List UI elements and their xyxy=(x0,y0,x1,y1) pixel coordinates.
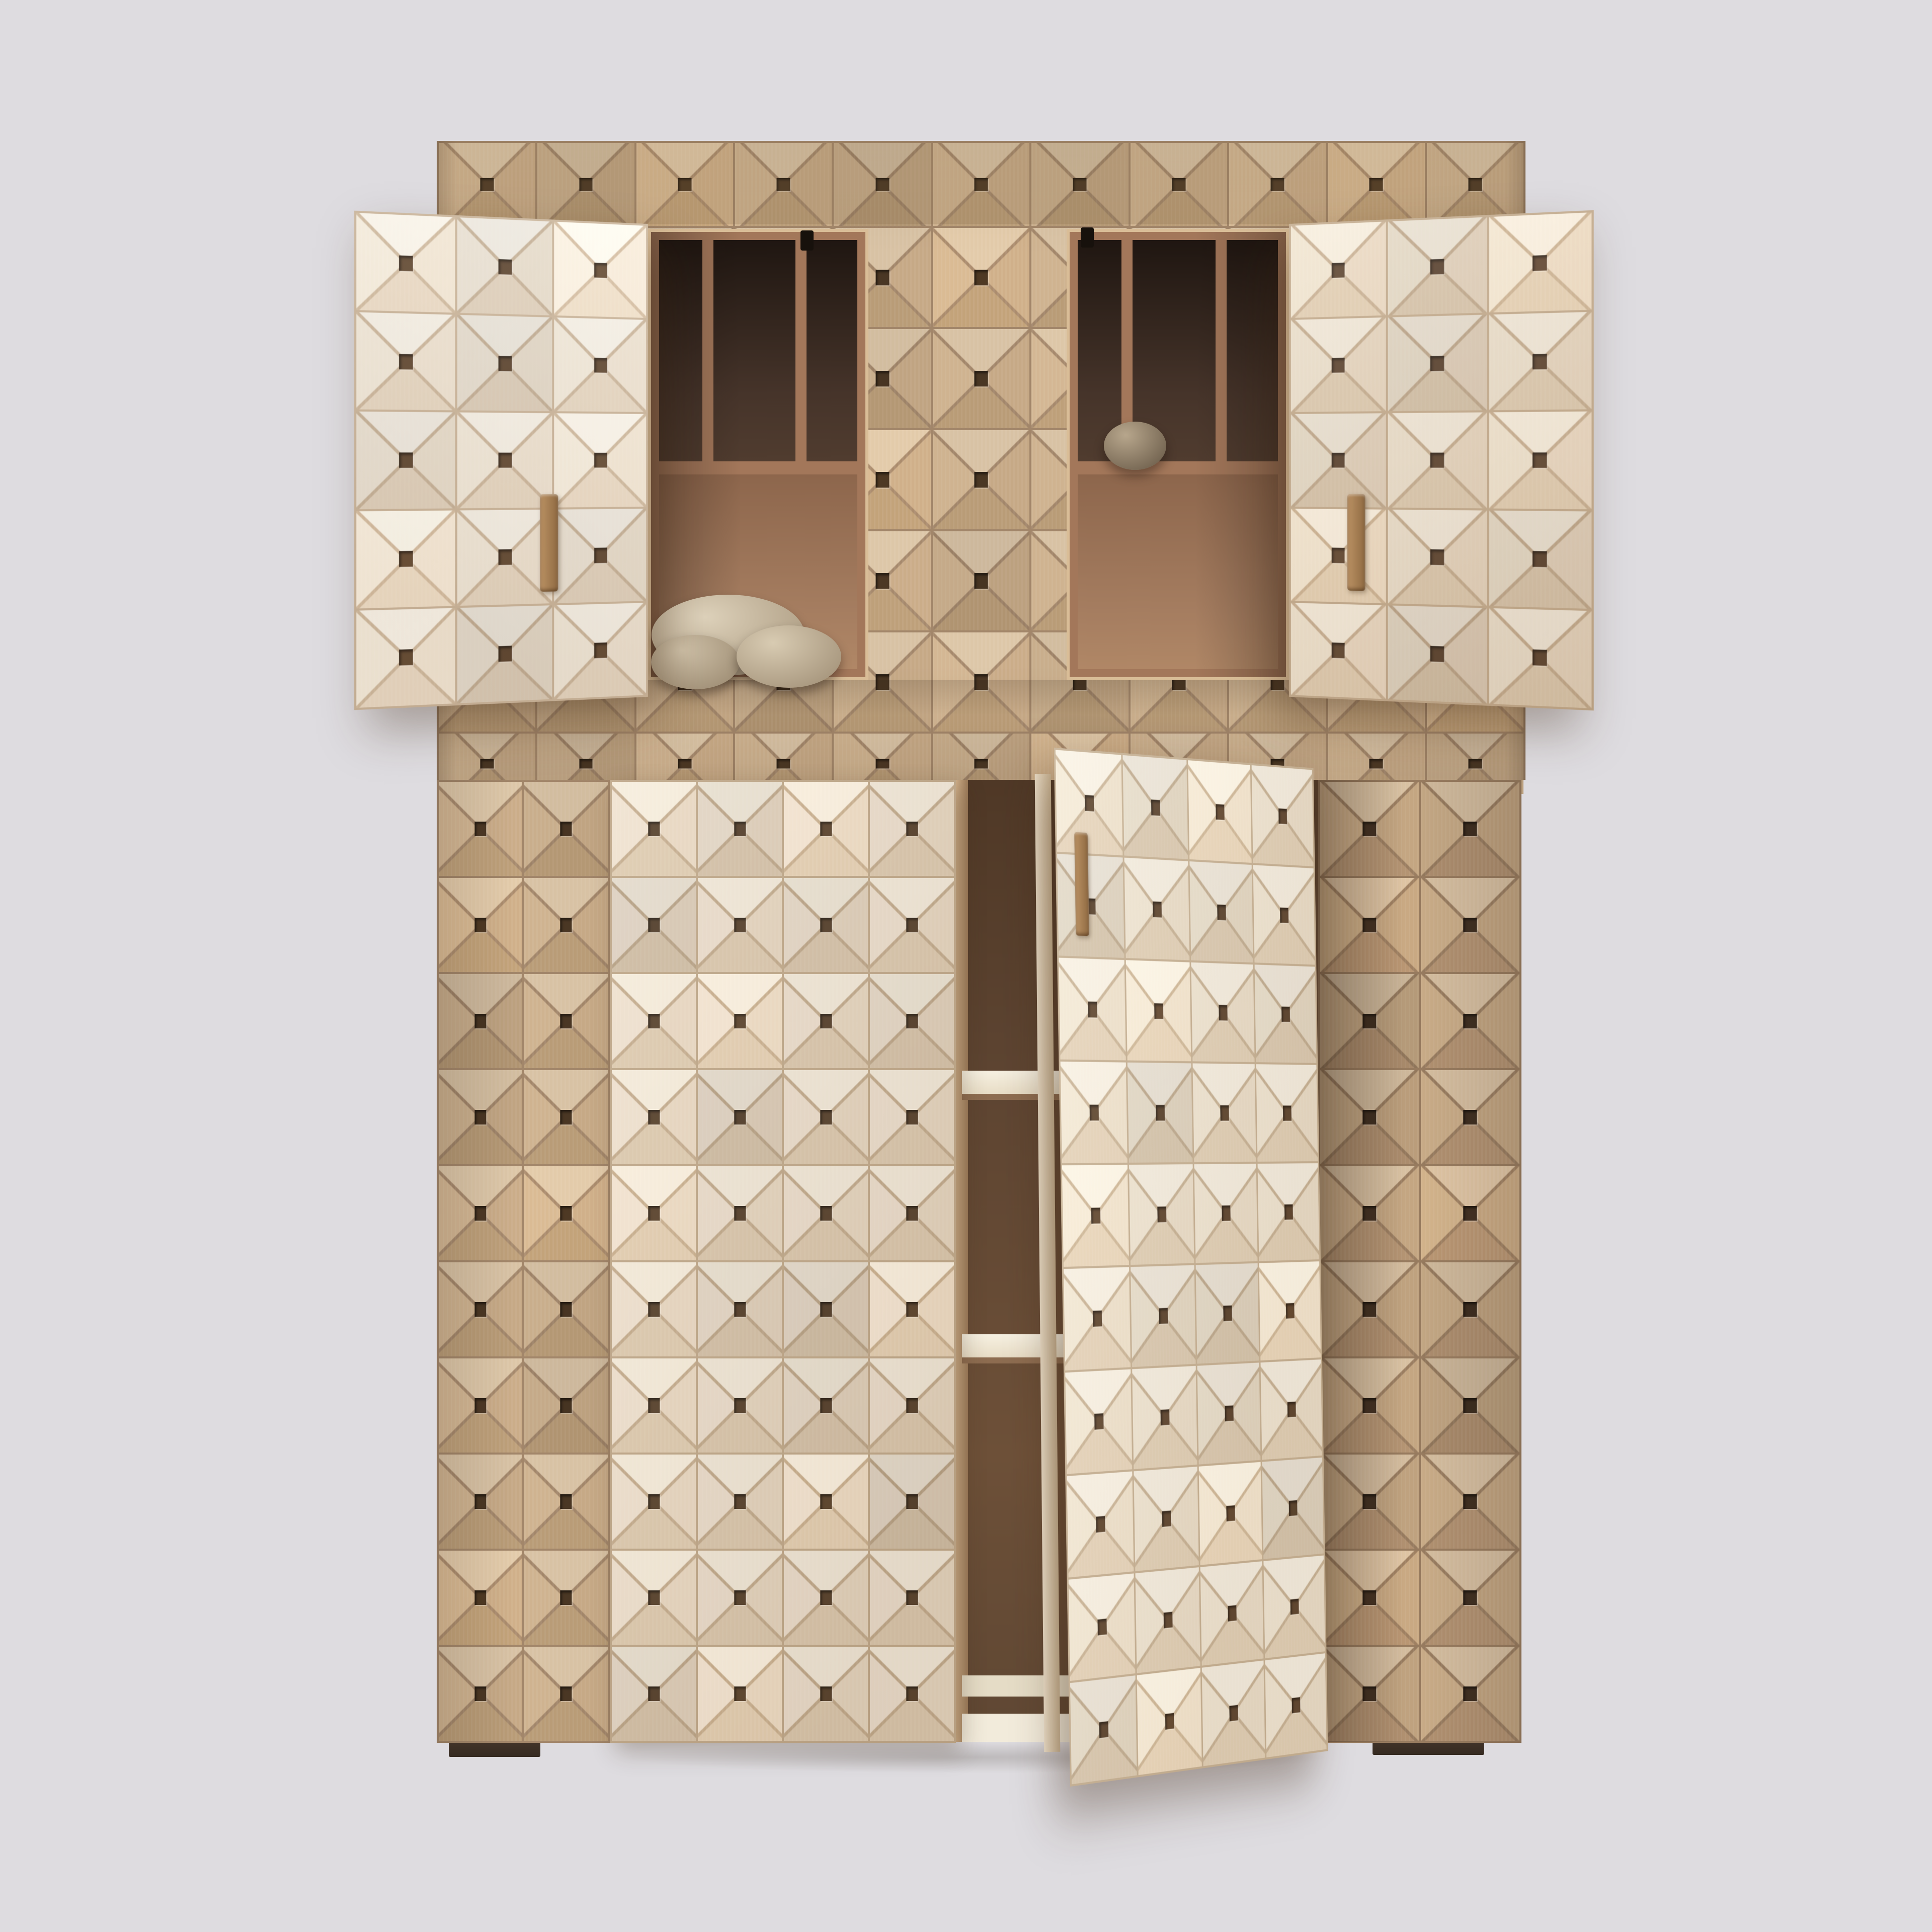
cubby xyxy=(1227,240,1278,461)
upper-opening-right-cubby-row xyxy=(1078,240,1278,461)
pyramid-tile xyxy=(1388,315,1487,412)
pyramid-tile xyxy=(698,1358,782,1453)
pyramid-tile xyxy=(1320,1070,1419,1164)
pyramid-tile xyxy=(457,315,552,412)
pyramid-tile xyxy=(1320,1166,1419,1260)
lower-door-closed xyxy=(610,780,956,1743)
pyramid-tile xyxy=(524,974,608,1068)
pyramid-tile xyxy=(933,531,1029,630)
pyramid-tile xyxy=(1388,509,1487,606)
pyramid-tile xyxy=(1291,509,1386,603)
pyramid-tile xyxy=(784,1358,868,1453)
pyramid-tile xyxy=(1320,878,1419,972)
pyramid-tile xyxy=(1062,1165,1129,1267)
pyramid-tile xyxy=(1056,750,1123,855)
pyramid-tile xyxy=(457,509,552,606)
pyramid-tile xyxy=(1189,861,1253,962)
upper-opening-right xyxy=(1067,229,1289,680)
pyramid-tile xyxy=(356,510,455,608)
pyramid-tile xyxy=(784,974,868,1068)
pyramid-tile xyxy=(870,974,954,1068)
pyramid-tile xyxy=(870,1262,954,1356)
pyramid-tile xyxy=(1388,413,1487,508)
pyramid-tile xyxy=(784,1166,868,1260)
pyramid-tile xyxy=(1131,143,1227,226)
pyramid-tile xyxy=(439,143,535,226)
pyramid-tile xyxy=(933,143,1029,226)
door-handle xyxy=(1074,832,1089,936)
pyramid-tile xyxy=(1320,1358,1419,1453)
upper-door-left-tiles xyxy=(354,211,648,710)
pyramid-tile xyxy=(1229,143,1326,226)
pyramid-tile xyxy=(1421,1166,1519,1260)
pyramid-tile xyxy=(698,1455,782,1549)
pyramid-tile xyxy=(698,1262,782,1356)
upper-opening-left-cubby-row xyxy=(659,240,857,461)
pyramid-tile xyxy=(1057,854,1124,958)
pyramid-tile xyxy=(439,1358,522,1453)
lower-left-column xyxy=(437,780,610,1743)
lower-door-closed-tiles xyxy=(610,780,956,1743)
pyramid-tile xyxy=(356,213,455,313)
pyramid-tile xyxy=(1031,143,1128,226)
pyramid-tile xyxy=(1061,1062,1128,1163)
pyramid-tile xyxy=(554,509,646,603)
pyramid-tile xyxy=(636,143,733,226)
pyramid-tile xyxy=(524,1262,608,1356)
pyramid-tile xyxy=(457,605,552,703)
pyramid-tile xyxy=(1200,1561,1264,1665)
hinge-hardware-left xyxy=(800,230,814,251)
upper-opening-right-shelf-space xyxy=(1078,474,1278,669)
pyramid-tile xyxy=(1291,414,1386,508)
pyramid-tile xyxy=(1124,858,1190,960)
pyramid-tile xyxy=(1320,1455,1419,1549)
pyramid-tile xyxy=(612,1262,696,1356)
pyramid-tile xyxy=(784,1551,868,1645)
pyramid-tile xyxy=(870,1166,954,1260)
pyramid-tile xyxy=(933,228,1029,327)
pyramid-tile xyxy=(1202,1660,1265,1766)
pyramid-tile xyxy=(1291,221,1386,318)
pyramid-tile xyxy=(1131,1265,1195,1367)
pyramid-tile xyxy=(1265,1653,1326,1757)
pyramid-tile xyxy=(1263,1556,1325,1658)
pyramid-tile xyxy=(1320,1262,1419,1356)
upper-door-right-tiles xyxy=(1289,210,1594,711)
pyramid-tile xyxy=(1320,1551,1419,1645)
pyramid-tile xyxy=(1252,765,1314,866)
pyramid-tile xyxy=(1421,1070,1519,1164)
pyramid-tile xyxy=(698,974,782,1068)
pyramid-tile xyxy=(1067,1472,1134,1578)
pyramid-tile xyxy=(698,1070,782,1164)
pyramid-tile xyxy=(356,608,455,708)
pyramid-tile xyxy=(439,1166,522,1260)
pyramid-tile xyxy=(1070,1675,1137,1784)
upper-door-right xyxy=(1289,210,1594,711)
pyramid-tile xyxy=(933,430,1029,529)
pyramid-tile xyxy=(1065,1370,1132,1474)
lower-door-open xyxy=(1054,748,1328,1787)
lower-left-column-tiles xyxy=(437,780,610,1743)
pyramid-tile xyxy=(612,974,696,1068)
pyramid-tile xyxy=(870,1358,954,1453)
product-photo-backdrop xyxy=(0,0,1932,1932)
pyramid-tile xyxy=(1421,974,1519,1068)
pyramid-tile xyxy=(457,217,552,315)
pyramid-tile xyxy=(1126,960,1191,1061)
cubby xyxy=(713,240,795,461)
pyramid-tile xyxy=(554,603,646,699)
pyramid-tile xyxy=(784,1262,868,1356)
pyramid-tile xyxy=(554,222,646,318)
pyramid-tile xyxy=(1489,312,1592,411)
pyramid-tile xyxy=(524,1455,608,1549)
pyramid-tile xyxy=(1291,603,1386,699)
upper-door-left xyxy=(354,211,648,710)
pyramid-tile xyxy=(1262,1458,1323,1559)
pyramid-tile xyxy=(1259,1261,1321,1360)
pyramid-tile xyxy=(439,974,522,1068)
pyramid-tile xyxy=(1489,212,1592,312)
pyramid-tile xyxy=(439,1262,522,1356)
pyramid-tile xyxy=(1489,608,1592,708)
pyramid-tile xyxy=(524,1647,608,1741)
pyramid-tile xyxy=(439,1455,522,1549)
pyramid-tile xyxy=(1388,217,1487,315)
pyramid-tile xyxy=(537,143,634,226)
pyramid-tile xyxy=(554,317,646,412)
door-handle xyxy=(540,494,558,592)
lower-door-open-tiles xyxy=(1054,748,1328,1787)
stone-cubby xyxy=(1104,422,1166,470)
pyramid-tile xyxy=(698,1551,782,1645)
pyramid-tile xyxy=(356,412,455,509)
pyramid-tile xyxy=(1258,1163,1320,1261)
cubby xyxy=(807,240,857,461)
pyramid-tile xyxy=(1421,1551,1519,1645)
stone-medium xyxy=(737,625,841,688)
pyramid-tile xyxy=(1421,1358,1519,1453)
pyramid-tile xyxy=(698,1647,782,1741)
pyramid-tile xyxy=(784,878,868,972)
pyramid-tile xyxy=(612,1358,696,1453)
pyramid-tile xyxy=(1194,1164,1258,1263)
pyramid-tile xyxy=(1134,1467,1198,1571)
pyramid-tile xyxy=(1188,760,1251,863)
pyramid-tile xyxy=(834,143,930,226)
pyramid-tile xyxy=(1320,974,1419,1068)
pyramid-tile xyxy=(612,1455,696,1549)
pyramid-tile xyxy=(784,1070,868,1164)
pyramid-tile xyxy=(870,1070,954,1164)
pyramid-tile xyxy=(1320,1647,1419,1741)
pyramid-tile xyxy=(1122,755,1188,859)
pyramid-tile xyxy=(784,1647,868,1741)
pyramid-tile xyxy=(870,1551,954,1645)
pyramid-tile xyxy=(524,782,608,876)
pyramid-tile xyxy=(1421,782,1519,876)
pyramid-tile xyxy=(870,878,954,972)
lower-right-column xyxy=(1318,780,1521,1743)
pyramid-tile xyxy=(1196,1263,1259,1364)
pyramid-tile xyxy=(439,1070,522,1164)
pyramid-tile xyxy=(612,1166,696,1260)
pyramid-tile xyxy=(612,782,696,876)
pyramid-tile xyxy=(1192,1063,1256,1162)
pyramid-tile xyxy=(1421,1647,1519,1741)
pyramid-tile xyxy=(1427,143,1523,226)
pyramid-tile xyxy=(735,143,832,226)
pyramid-tile xyxy=(1489,510,1592,609)
pyramid-tile xyxy=(1253,865,1315,964)
pyramid-tile xyxy=(612,1070,696,1164)
pyramid-tile xyxy=(1069,1573,1136,1681)
pyramid-tile xyxy=(439,1551,522,1645)
pyramid-tile xyxy=(698,782,782,876)
pyramid-tile xyxy=(698,1166,782,1260)
pyramid-tile xyxy=(1421,878,1519,972)
pyramid-tile xyxy=(1255,964,1317,1063)
pyramid-tile xyxy=(612,1551,696,1645)
pyramid-tile xyxy=(524,1358,608,1453)
pyramid-tile xyxy=(1132,1366,1197,1469)
pyramid-tile xyxy=(439,1647,522,1741)
pyramid-tile xyxy=(1059,958,1125,1061)
pyramid-tile xyxy=(1129,1164,1194,1265)
pyramid-tile xyxy=(524,1070,608,1164)
door-handle xyxy=(1347,494,1365,591)
pyramid-tile xyxy=(554,414,646,507)
pyramid-tile xyxy=(1320,782,1419,876)
pyramid-tile xyxy=(612,1647,696,1741)
pyramid-tile xyxy=(524,1166,608,1260)
hinge-hardware-right xyxy=(1081,227,1094,248)
pyramid-tile xyxy=(1128,1063,1193,1163)
pyramid-tile xyxy=(1191,962,1254,1062)
pyramid-tile xyxy=(1421,1455,1519,1549)
pyramid-tile xyxy=(933,632,1029,732)
pyramid-tile xyxy=(1199,1462,1262,1565)
pyramid-tile xyxy=(524,1551,608,1645)
pyramid-tile xyxy=(1388,605,1487,703)
pyramid-tile xyxy=(784,1455,868,1549)
pyramid-tile xyxy=(612,878,696,972)
pyramid-tile xyxy=(524,878,608,972)
pyramid-tile xyxy=(1064,1267,1131,1371)
lower-right-column-tiles xyxy=(1318,780,1521,1743)
pyramid-tile xyxy=(1136,1567,1200,1673)
pyramid-tile xyxy=(1137,1668,1202,1775)
pyramid-tile xyxy=(1260,1359,1322,1460)
pyramid-tile xyxy=(870,782,954,876)
pyramid-tile xyxy=(698,878,782,972)
pyramid-tile xyxy=(457,413,552,508)
pyramid-tile xyxy=(1421,1262,1519,1356)
pyramid-tile xyxy=(356,312,455,411)
opening-jamb xyxy=(956,780,968,1742)
pyramid-tile xyxy=(933,329,1029,428)
pyramid-tile xyxy=(1489,412,1592,509)
pyramid-tile xyxy=(439,878,522,972)
pyramid-tile xyxy=(1197,1362,1261,1464)
pyramid-tile xyxy=(870,1455,954,1549)
pyramid-tile xyxy=(784,782,868,876)
pyramid-tile xyxy=(1256,1064,1318,1162)
pyramid-tile xyxy=(1291,317,1386,412)
pyramid-tile xyxy=(870,1647,954,1741)
pyramid-tile xyxy=(439,782,522,876)
pyramid-tile xyxy=(1328,143,1424,226)
cubby xyxy=(659,240,702,461)
stone-small xyxy=(651,635,740,689)
